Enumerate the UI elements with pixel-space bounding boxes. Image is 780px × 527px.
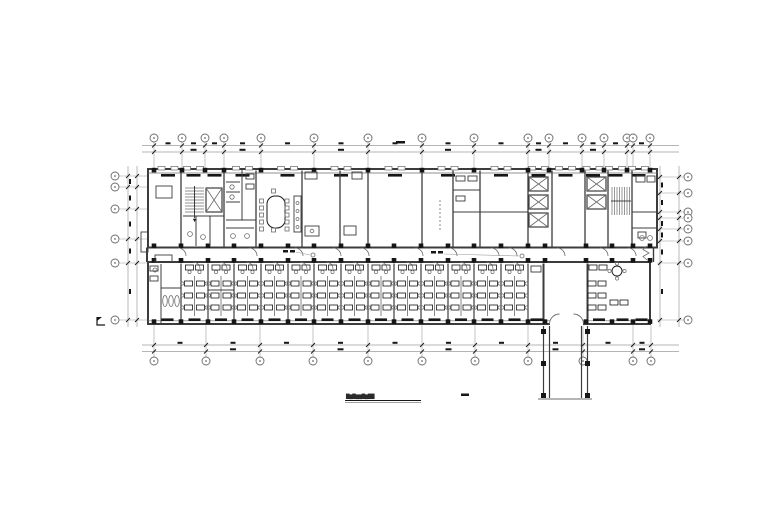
radiator <box>208 174 222 177</box>
desk <box>599 265 607 270</box>
desk <box>250 293 258 298</box>
chair <box>321 270 324 273</box>
desk <box>277 305 285 310</box>
desk <box>291 293 299 298</box>
column <box>180 168 185 173</box>
desk <box>398 305 406 310</box>
grid-bubble-number <box>626 137 628 139</box>
desk <box>463 281 471 286</box>
desk <box>357 305 365 310</box>
dim-number-smudge <box>129 289 131 294</box>
column <box>543 244 548 249</box>
radiator <box>617 318 629 321</box>
desk <box>437 293 445 298</box>
desk <box>398 281 406 286</box>
fixture-circle <box>310 229 314 233</box>
grid-bubble-number <box>367 360 369 362</box>
dim-number-smudge <box>339 142 344 144</box>
column <box>419 244 424 249</box>
chair <box>278 270 281 273</box>
dim-number-smudge <box>590 149 596 151</box>
column <box>585 361 590 366</box>
column <box>547 168 552 173</box>
column <box>366 168 371 173</box>
desk <box>610 300 618 305</box>
chair <box>268 270 271 273</box>
fixture <box>246 184 254 189</box>
desk <box>303 293 311 298</box>
counter-item <box>296 218 299 221</box>
desk <box>186 265 194 270</box>
desk <box>371 305 379 310</box>
dim-number-smudge <box>661 289 663 294</box>
desk <box>211 281 219 286</box>
column <box>648 168 653 173</box>
chair <box>623 269 626 272</box>
fixture <box>155 255 172 262</box>
dim-number-smudge <box>166 142 171 144</box>
desk <box>265 305 273 310</box>
annotation-smudge <box>438 251 443 254</box>
grid-bubble-number <box>181 137 183 139</box>
window <box>491 166 498 170</box>
door-arc <box>326 262 333 269</box>
desk <box>238 281 246 286</box>
radiator <box>636 318 648 321</box>
dim-number-smudge <box>639 348 645 350</box>
chair <box>481 270 484 273</box>
radiator <box>402 318 414 321</box>
fixture <box>456 176 465 181</box>
grid-bubble-number <box>687 240 689 242</box>
column <box>472 168 477 173</box>
desk <box>265 281 273 286</box>
window <box>344 166 351 170</box>
grid-bubble-number <box>582 360 584 362</box>
dim-number-smudge <box>445 149 451 151</box>
chair <box>508 270 511 273</box>
column <box>179 258 184 263</box>
counter-item <box>296 210 299 213</box>
column <box>610 258 615 263</box>
chair <box>260 220 264 224</box>
column <box>259 258 264 263</box>
desk <box>505 281 513 286</box>
desk <box>197 293 205 298</box>
dim-number-smudge <box>446 348 452 350</box>
dim-number-smudge <box>285 142 290 144</box>
desk <box>330 293 338 298</box>
door-arc <box>361 248 369 256</box>
door-arc <box>249 248 257 256</box>
column <box>541 361 546 366</box>
dim-number-smudge <box>191 149 197 151</box>
grid-bubble-number <box>114 186 116 188</box>
desk <box>399 265 407 270</box>
chair <box>428 270 431 273</box>
scale-smudge <box>461 394 469 397</box>
desk <box>291 281 299 286</box>
grid-bubble-number <box>114 175 116 177</box>
dim-number-smudge <box>640 342 645 344</box>
column <box>625 168 630 173</box>
fixture <box>531 266 541 272</box>
radiator <box>429 318 441 321</box>
desk <box>451 281 459 286</box>
desk <box>479 265 487 270</box>
column <box>648 244 653 249</box>
column <box>584 319 589 324</box>
fixture <box>638 232 646 238</box>
grid-bubble-number <box>204 137 206 139</box>
grid-bubble-number <box>421 360 423 362</box>
desk <box>383 281 391 286</box>
desk <box>223 305 231 310</box>
door-arc <box>509 248 517 256</box>
toilet-fixture <box>175 296 180 307</box>
grid-bubble-number <box>527 360 529 362</box>
dim-number-smudge <box>446 342 451 344</box>
desk <box>277 293 285 298</box>
desk <box>197 305 205 310</box>
column <box>312 244 317 249</box>
grid-bubble-number <box>548 137 550 139</box>
grid-bubble-number <box>687 211 689 213</box>
column <box>312 319 317 324</box>
column <box>286 258 291 263</box>
column <box>541 329 546 334</box>
desk <box>410 293 418 298</box>
chair <box>491 270 494 273</box>
column <box>339 319 344 324</box>
dim-number-smudge <box>606 342 611 344</box>
desk <box>620 300 628 305</box>
dim-number-smudge <box>396 141 405 144</box>
dim-number-smudge <box>230 348 236 350</box>
radiator <box>187 174 201 177</box>
column <box>232 258 237 263</box>
desk <box>238 305 246 310</box>
radiator <box>189 318 201 321</box>
desk <box>410 281 418 286</box>
dim-number-smudge <box>661 221 663 226</box>
chair <box>198 270 201 273</box>
dim-number-smudge <box>129 196 131 201</box>
desk <box>318 293 326 298</box>
desk <box>357 281 365 286</box>
dim-number-smudge <box>191 142 196 144</box>
chair <box>260 206 264 210</box>
fixture <box>456 196 465 201</box>
dim-number-smudge <box>639 142 644 144</box>
chair <box>411 270 414 273</box>
conference-table <box>267 196 285 228</box>
column <box>392 244 397 249</box>
dim-number-smudge <box>129 222 131 227</box>
window <box>331 166 338 170</box>
chair <box>285 206 289 210</box>
annotation-smudge <box>431 251 436 254</box>
column <box>472 319 477 324</box>
chair <box>615 277 618 280</box>
dim-number-smudge <box>338 342 343 344</box>
grid-bubble-number <box>603 137 605 139</box>
fixture <box>468 176 477 181</box>
fixture <box>156 186 172 198</box>
window <box>438 166 445 170</box>
column <box>610 244 615 249</box>
column <box>339 244 344 249</box>
leader-bubble <box>311 253 315 257</box>
door-arc <box>193 262 200 269</box>
desk <box>410 305 418 310</box>
column <box>648 258 653 263</box>
desk <box>589 265 597 270</box>
dim-number-smudge <box>231 342 236 344</box>
dim-number-smudge <box>563 142 568 144</box>
door-arc <box>415 248 423 256</box>
dim-number-smudge <box>129 179 131 184</box>
radiator <box>609 174 623 177</box>
desk <box>357 293 365 298</box>
chair <box>285 199 289 203</box>
radiator <box>162 318 174 321</box>
column <box>499 244 504 249</box>
window <box>197 166 204 170</box>
desk <box>238 293 246 298</box>
plan-svg: █▇█▇▇█▇██ <box>0 0 780 527</box>
grid-bubble-number <box>581 137 583 139</box>
chair <box>285 227 289 231</box>
chair <box>260 199 264 203</box>
desk <box>425 293 433 298</box>
chair <box>251 270 254 273</box>
column <box>232 244 237 249</box>
window <box>619 166 626 170</box>
chair <box>285 220 289 224</box>
fixture-circle <box>230 195 234 199</box>
door-arc <box>460 262 467 269</box>
dim-number-smudge <box>212 142 217 144</box>
desk <box>291 305 299 310</box>
door-arc <box>406 262 413 269</box>
door-arc <box>513 262 520 269</box>
dim-number-smudge <box>129 249 131 254</box>
desk <box>505 293 513 298</box>
desk <box>437 305 445 310</box>
radiator <box>494 174 508 177</box>
column <box>526 258 531 263</box>
desk <box>239 265 247 270</box>
column <box>419 319 424 324</box>
desk <box>517 293 525 298</box>
desk <box>517 305 525 310</box>
radiator <box>295 318 307 321</box>
column <box>152 244 157 249</box>
column <box>585 329 590 334</box>
window <box>556 166 563 170</box>
column <box>526 168 531 173</box>
chair <box>454 270 457 273</box>
radiator <box>322 318 334 321</box>
grid-bubble-number <box>473 137 475 139</box>
grid-bubble-number <box>114 238 116 240</box>
window <box>606 166 613 170</box>
desk <box>185 293 193 298</box>
window <box>278 166 285 170</box>
window <box>385 166 392 170</box>
grid-bubble-number <box>527 137 529 139</box>
entrance-opening <box>550 319 583 326</box>
column <box>259 168 264 173</box>
leader-bubble <box>520 254 524 258</box>
radiator <box>559 174 573 177</box>
window <box>642 166 649 170</box>
dim-number-smudge <box>591 142 596 144</box>
column <box>610 319 615 324</box>
chair <box>260 213 264 217</box>
door-arc <box>220 262 227 269</box>
desk <box>598 305 606 310</box>
dim-number-smudge <box>240 142 245 144</box>
desk <box>185 305 193 310</box>
door-arc <box>449 248 457 256</box>
column <box>366 319 371 324</box>
door-arc <box>300 262 307 269</box>
column <box>472 244 477 249</box>
desk <box>426 265 434 270</box>
desk <box>319 265 327 270</box>
dim-number-smudge <box>393 342 398 344</box>
desk <box>250 305 258 310</box>
radiator <box>509 318 521 321</box>
desk <box>383 305 391 310</box>
desk <box>383 293 391 298</box>
desk <box>506 265 514 270</box>
grid-bubble-number <box>650 360 652 362</box>
fixture-circle <box>231 234 236 239</box>
fixture-circle <box>188 232 193 237</box>
desk <box>345 305 353 310</box>
chair <box>331 270 334 273</box>
dim-number-smudge <box>553 342 558 344</box>
desk <box>371 281 379 286</box>
column <box>392 319 397 324</box>
grid-bubble-number <box>687 217 689 219</box>
desk <box>330 281 338 286</box>
radiator <box>375 318 387 321</box>
fixture <box>647 176 655 182</box>
column <box>152 319 157 324</box>
column <box>543 258 548 263</box>
chair <box>214 270 217 273</box>
chair <box>224 270 227 273</box>
dim-number-smudge <box>613 142 618 144</box>
window <box>451 166 458 170</box>
fixture-circle <box>245 234 250 239</box>
dim-number-smudge <box>499 142 504 144</box>
radiator <box>334 174 348 177</box>
column <box>584 258 589 263</box>
desk <box>463 305 471 310</box>
column <box>339 258 344 263</box>
desk <box>277 281 285 286</box>
counter-item <box>296 226 299 229</box>
column <box>584 244 589 249</box>
column <box>222 168 227 173</box>
desk <box>588 281 596 286</box>
column <box>392 258 397 263</box>
grid-bubble-number <box>687 319 689 321</box>
radiator <box>242 318 254 321</box>
column <box>259 244 264 249</box>
desk <box>451 305 459 310</box>
desk <box>505 305 513 310</box>
door-arc <box>557 248 565 256</box>
chair <box>272 228 276 232</box>
window <box>158 166 165 170</box>
dim-number-smudge <box>661 250 663 255</box>
column <box>366 258 371 263</box>
window <box>233 166 240 170</box>
grid-bubble-number <box>259 360 261 362</box>
column <box>419 258 424 263</box>
radiator <box>531 318 543 321</box>
door-arc <box>246 262 253 269</box>
column <box>232 319 237 324</box>
grid-bubble-number <box>260 137 262 139</box>
desk <box>451 293 459 298</box>
desk <box>345 293 353 298</box>
desk <box>490 293 498 298</box>
door-arc <box>273 262 280 269</box>
desk <box>212 265 220 270</box>
radiator <box>455 318 467 321</box>
desk <box>346 265 354 270</box>
round-table <box>612 266 622 276</box>
chair <box>464 270 467 273</box>
column <box>206 258 211 263</box>
window <box>246 166 253 170</box>
desk <box>490 281 498 286</box>
window <box>398 166 405 170</box>
column <box>543 319 548 324</box>
grid-bubble-number <box>632 360 634 362</box>
desk <box>598 281 606 286</box>
desk <box>303 305 311 310</box>
radiator <box>281 174 295 177</box>
chair <box>304 270 307 273</box>
chair <box>374 270 377 273</box>
grid-bubble-number <box>313 137 315 139</box>
fixture-circle <box>230 185 234 189</box>
column <box>286 319 291 324</box>
desk <box>452 265 460 270</box>
column <box>259 319 264 324</box>
grid-bubble-number <box>223 137 225 139</box>
fixture-circle <box>201 235 206 240</box>
desk <box>598 293 606 298</box>
desk <box>588 305 596 310</box>
window <box>291 166 298 170</box>
radiator <box>388 174 402 177</box>
door-arc <box>433 262 440 269</box>
window <box>184 166 191 170</box>
desk <box>478 293 486 298</box>
grid-bubble-number <box>687 176 689 178</box>
grid-bubble-number <box>114 208 116 210</box>
chair <box>358 270 361 273</box>
